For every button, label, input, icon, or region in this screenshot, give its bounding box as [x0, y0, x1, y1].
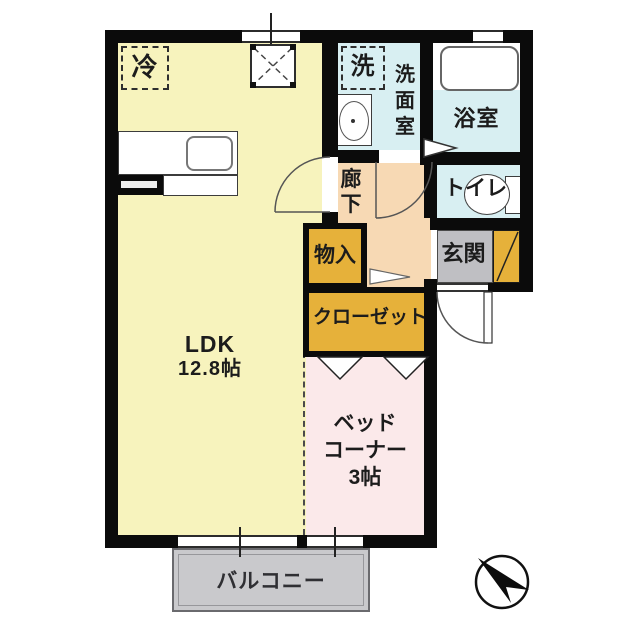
- kitchen-sink: [186, 136, 233, 171]
- ldk-label: LDK: [140, 331, 280, 357]
- kitchen-stove-slot: [121, 181, 157, 188]
- wall-left: [105, 30, 118, 548]
- wall-washroom-bathroom: [420, 43, 433, 165]
- room-ldk: [118, 43, 322, 535]
- window-ldk-top: [242, 30, 300, 43]
- wall-ldk-door-stub: [322, 212, 338, 226]
- ceiling-hatch-box: [250, 44, 296, 88]
- bed-corner-size-label: 3帖: [306, 466, 424, 490]
- ldk-size-label: 12.8帖: [140, 358, 280, 381]
- hallway-label: 廊 下: [337, 167, 365, 217]
- washer-label: 洗: [341, 53, 385, 81]
- toilet-label: トイレ: [431, 177, 520, 201]
- closet-label: クローゼット: [303, 307, 437, 329]
- wall-ldk-washroom: [322, 43, 338, 157]
- window-bed-balcony: [307, 535, 363, 548]
- bed-corner-label-line2: コーナー: [306, 439, 424, 463]
- entrance-threshold: [437, 283, 488, 292]
- window-ldk-balcony: [178, 535, 297, 548]
- bed-corner-label-line1: ベッド: [306, 412, 424, 436]
- storage-label: 物入: [303, 244, 367, 268]
- wall-washroom-hallway: [338, 150, 379, 163]
- shoe-cabinet: [493, 230, 520, 283]
- wall-bathroom-toilet: [433, 152, 533, 165]
- washbasin-drain-dot: [351, 119, 355, 123]
- bathtub: [440, 46, 519, 91]
- entrance-label: 玄関: [434, 241, 493, 266]
- kitchen-counter-return: [163, 175, 238, 196]
- wall-window-post: [297, 535, 307, 548]
- bathroom-label: 浴室: [433, 106, 520, 131]
- compass-north-arrow-icon: [476, 556, 529, 608]
- wall-top: [105, 30, 533, 43]
- front-door-swing: [437, 292, 492, 343]
- wall-entrance-bottom: [488, 283, 533, 292]
- washroom-label: 洗 面 室: [392, 62, 418, 140]
- refrigerator-label: 冷: [121, 53, 169, 83]
- window-bathroom-top: [473, 30, 503, 43]
- ldk-bed-partition-dashed: [303, 352, 305, 535]
- balcony-label: バルコニー: [172, 570, 370, 594]
- wall-toilet-entrance: [430, 218, 533, 230]
- floorplan-canvas: LDK 12.8帖 冷 洗 洗 面 室 浴室 廊 下 トイレ 玄関 物入 クロー…: [0, 0, 640, 640]
